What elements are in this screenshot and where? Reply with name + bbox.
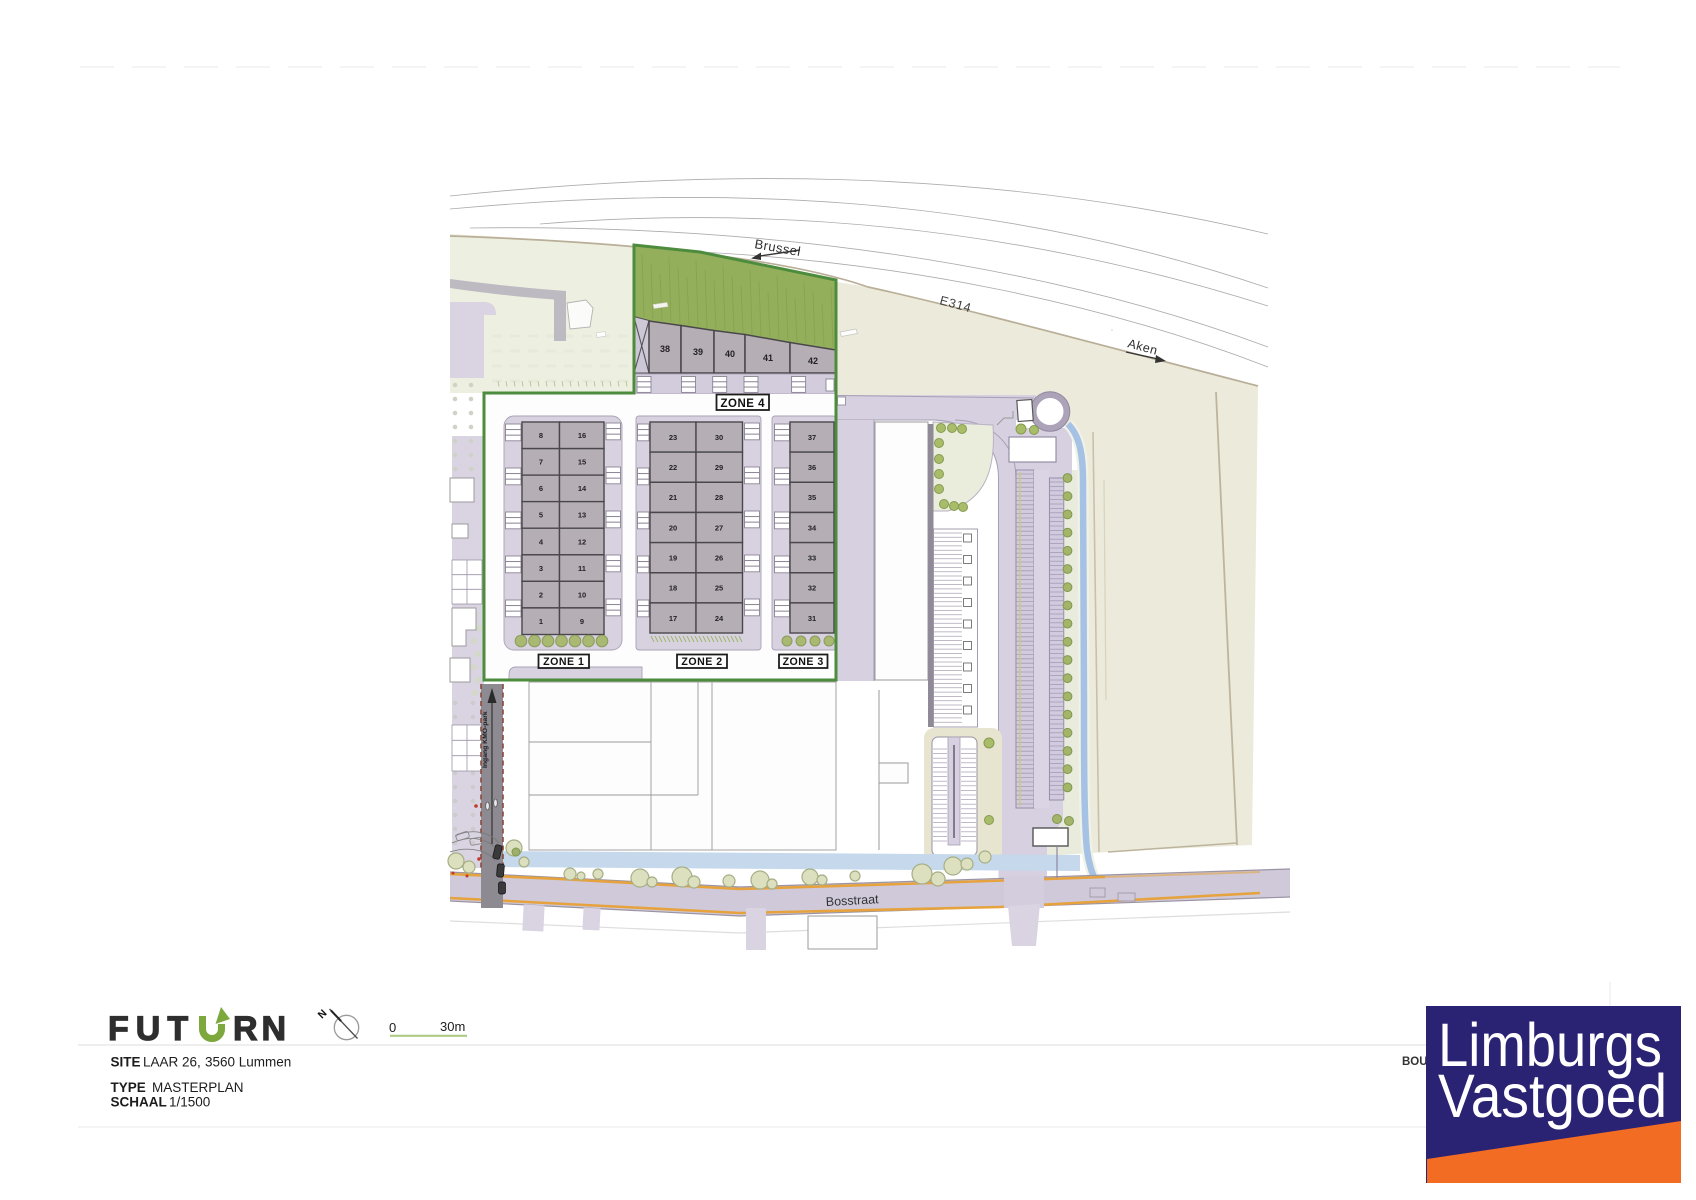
svg-text:34: 34 [808, 523, 817, 532]
svg-text:30m: 30m [440, 1019, 465, 1034]
svg-text:26: 26 [715, 554, 723, 563]
svg-text:32: 32 [808, 584, 816, 593]
svg-text:11: 11 [578, 564, 586, 573]
svg-text:13: 13 [578, 511, 586, 520]
svg-text:ZONE 1: ZONE 1 [543, 656, 584, 668]
svg-text:LAAR 26,: LAAR 26, [143, 1055, 201, 1070]
svg-text:8: 8 [539, 431, 543, 440]
svg-text:24: 24 [715, 614, 724, 623]
svg-text:38: 38 [660, 344, 670, 354]
svg-text:3: 3 [539, 564, 543, 573]
svg-text:RN: RN [233, 1010, 290, 1048]
svg-text:21: 21 [669, 493, 677, 502]
svg-text:33: 33 [808, 554, 816, 563]
svg-text:29: 29 [715, 463, 723, 472]
svg-text:BOU: BOU [1402, 1056, 1428, 1068]
svg-text:SCHAAL: SCHAAL [111, 1095, 167, 1110]
svg-text:39: 39 [693, 347, 703, 357]
svg-text:22: 22 [669, 463, 677, 472]
svg-text:6: 6 [539, 484, 543, 493]
svg-text:FUT: FUT [108, 1010, 195, 1048]
svg-text:25: 25 [715, 584, 723, 593]
svg-text:1: 1 [539, 617, 543, 626]
svg-text:1/1500: 1/1500 [169, 1095, 210, 1110]
svg-text:MASTERPLAN: MASTERPLAN [152, 1080, 244, 1095]
svg-text:42: 42 [808, 356, 818, 366]
svg-text:17: 17 [669, 614, 677, 623]
svg-text:SITE: SITE [111, 1055, 141, 1070]
svg-text:23: 23 [669, 433, 677, 442]
svg-text:12: 12 [578, 537, 586, 546]
svg-text:0: 0 [389, 1020, 396, 1035]
svg-text:ZONE 4: ZONE 4 [721, 398, 766, 410]
svg-text:7: 7 [539, 458, 543, 467]
svg-text:TYPE: TYPE [111, 1080, 146, 1095]
svg-text:18: 18 [669, 584, 677, 593]
svg-text:Bosstraat: Bosstraat [825, 892, 879, 909]
svg-text:Vastgoed: Vastgoed [1438, 1062, 1667, 1130]
svg-text:40: 40 [725, 349, 735, 359]
svg-text:16: 16 [578, 431, 586, 440]
svg-text:5: 5 [539, 511, 543, 520]
svg-text:30: 30 [715, 433, 723, 442]
svg-text:36: 36 [808, 463, 816, 472]
svg-text:28: 28 [715, 493, 723, 502]
svg-text:14: 14 [578, 484, 587, 493]
svg-text:15: 15 [578, 458, 586, 467]
svg-text:37: 37 [808, 433, 816, 442]
svg-text:9: 9 [580, 617, 584, 626]
svg-text:ZONE 3: ZONE 3 [783, 656, 824, 668]
svg-text:31: 31 [808, 614, 816, 623]
svg-text:10: 10 [578, 590, 586, 599]
svg-text:20: 20 [669, 523, 677, 532]
svg-text:3560 Lummen: 3560 Lummen [205, 1055, 291, 1070]
svg-text:19: 19 [669, 554, 677, 563]
svg-text:Ingang KMO-park: Ingang KMO-park [482, 711, 489, 768]
svg-text:2: 2 [539, 590, 543, 599]
svg-text:41: 41 [763, 353, 773, 363]
svg-text:35: 35 [808, 493, 816, 502]
svg-text:ZONE 2: ZONE 2 [681, 656, 722, 668]
svg-text:27: 27 [715, 523, 723, 532]
